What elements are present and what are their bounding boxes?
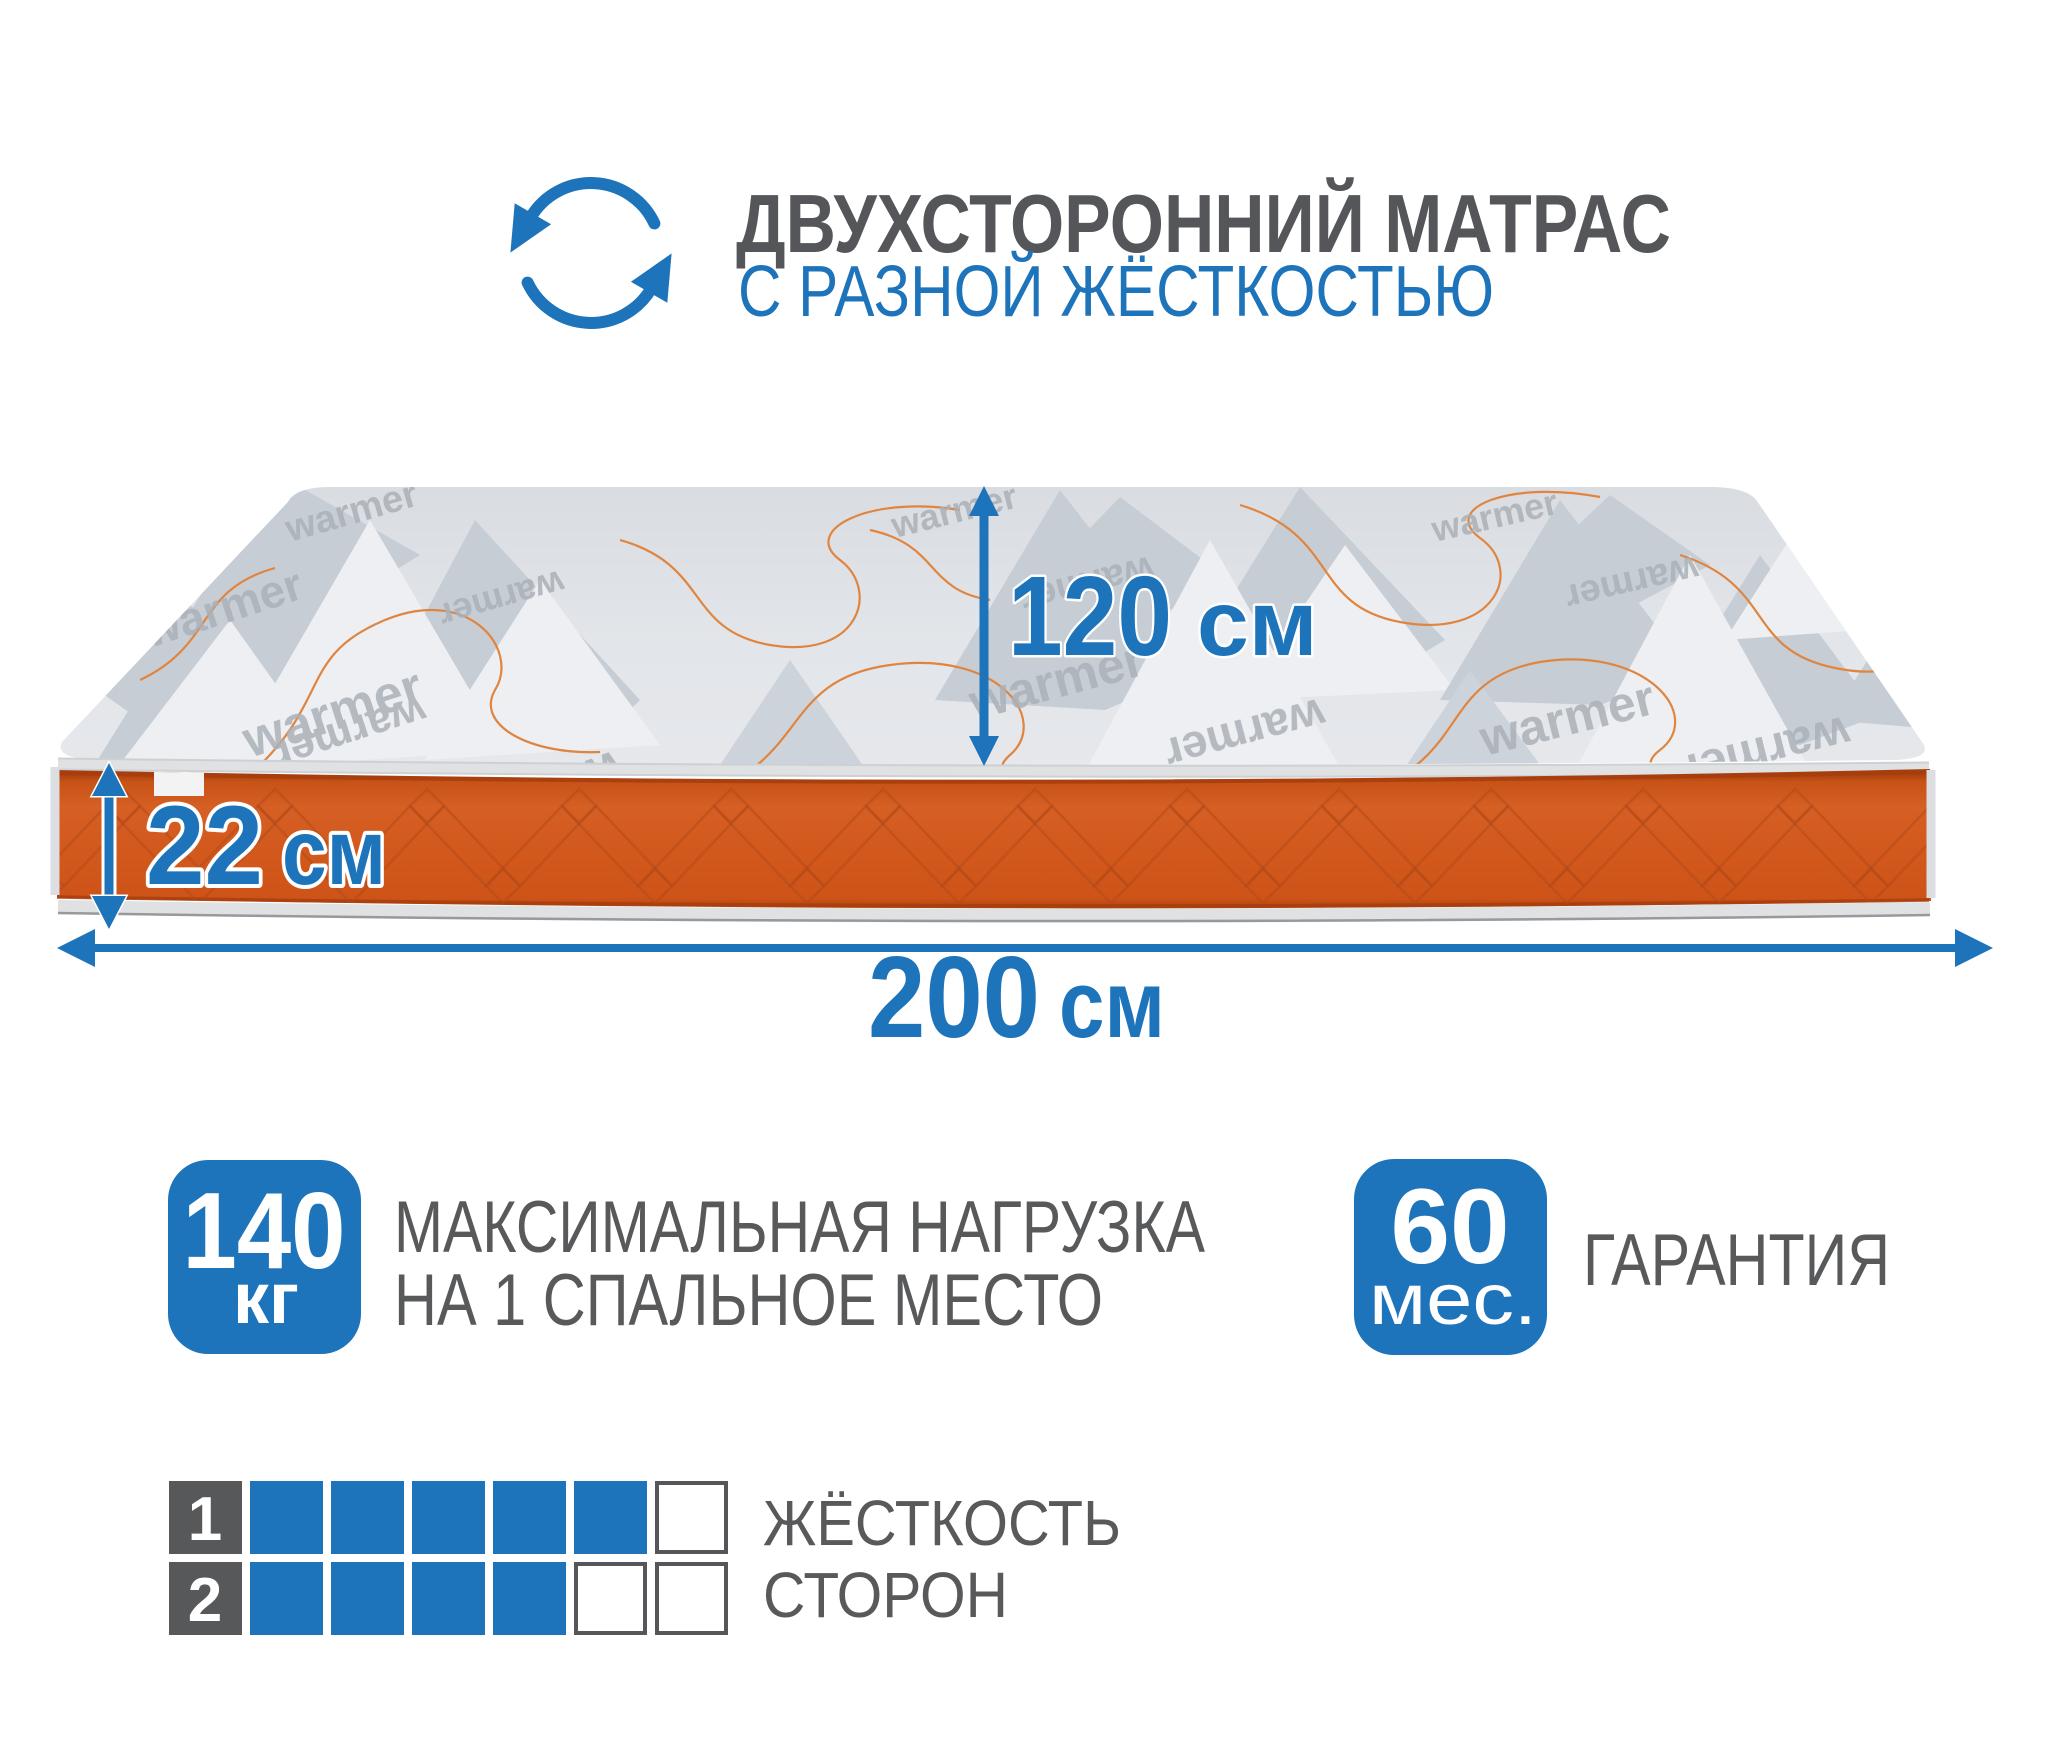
svg-text:200: 200 — [868, 932, 1040, 1062]
svg-text:ЖЁСТКОСТЬ: ЖЁСТКОСТЬ — [763, 1487, 1121, 1559]
svg-text:2: 2 — [188, 1566, 222, 1635]
svg-text:кг: кг — [233, 1259, 299, 1339]
svg-text:см: см — [1059, 951, 1165, 1058]
svg-text:см: см — [282, 800, 386, 904]
svg-text:мес.: мес. — [1369, 1260, 1537, 1340]
svg-text:НА 1 СПАЛЬНОЕ МЕСТО: НА 1 СПАЛЬНОЕ МЕСТО — [394, 1260, 1103, 1341]
svg-text:С РАЗНОЙ ЖЁСТКОСТЬЮ: С РАЗНОЙ ЖЁСТКОСТЬЮ — [738, 250, 1494, 332]
svg-text:1: 1 — [188, 1485, 222, 1554]
svg-text:см: см — [1197, 571, 1318, 675]
svg-text:120: 120 — [1008, 553, 1172, 679]
svg-text:22: 22 — [146, 783, 263, 908]
svg-text:СТОРОН: СТОРОН — [763, 1559, 1008, 1631]
svg-text:ГАРАНТИЯ: ГАРАНТИЯ — [1583, 1220, 1890, 1301]
svg-text:МАКСИМАЛЬНАЯ НАГРУЗКА: МАКСИМАЛЬНАЯ НАГРУЗКА — [394, 1187, 1205, 1268]
svg-text:warmer: warmer — [1888, 502, 2015, 565]
